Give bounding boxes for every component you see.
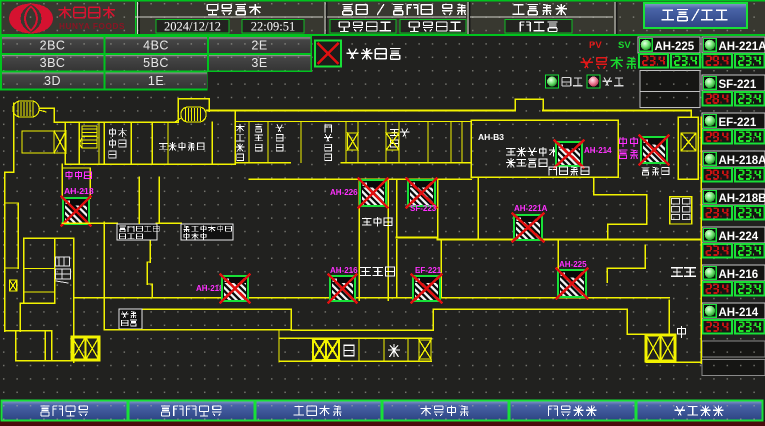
svg-text:3D: 3D bbox=[44, 74, 61, 88]
svg-text:AH-218A: AH-218A bbox=[719, 155, 765, 167]
svg-text:AH-224: AH-224 bbox=[719, 231, 759, 243]
svg-text:3E: 3E bbox=[251, 56, 267, 70]
svg-text:AH-218B: AH-218B bbox=[719, 193, 765, 205]
svg-text:SF-221: SF-221 bbox=[719, 79, 757, 91]
svg-text:AH-214: AH-214 bbox=[719, 307, 759, 319]
svg-text:1E: 1E bbox=[148, 74, 164, 88]
svg-text:AH-225: AH-225 bbox=[559, 260, 587, 269]
svg-text:4BC: 4BC bbox=[143, 39, 169, 53]
svg-text:AH-221A: AH-221A bbox=[719, 41, 765, 53]
svg-text:AH-216: AH-216 bbox=[330, 266, 358, 275]
svg-text:AH-218: AH-218 bbox=[196, 284, 224, 293]
svg-text:3BC: 3BC bbox=[40, 56, 66, 70]
svg-text:EF-221: EF-221 bbox=[719, 117, 757, 129]
svg-text:AH-216: AH-216 bbox=[719, 269, 759, 281]
svg-text:22:09:51: 22:09:51 bbox=[251, 20, 295, 34]
svg-text:PV: PV bbox=[589, 40, 602, 51]
svg-text:AH-221A: AH-221A bbox=[514, 204, 548, 213]
svg-text:EF-221: EF-221 bbox=[415, 266, 442, 275]
svg-text:2024/12/12: 2024/12/12 bbox=[164, 20, 221, 34]
svg-text:AH-B3: AH-B3 bbox=[478, 132, 504, 142]
svg-text:2BC: 2BC bbox=[40, 39, 66, 53]
svg-text:AH-214: AH-214 bbox=[584, 146, 612, 155]
svg-text:AH-226: AH-226 bbox=[330, 188, 358, 197]
svg-text:AH-218: AH-218 bbox=[64, 186, 94, 196]
svg-text:HUNYA FOODS: HUNYA FOODS bbox=[59, 22, 125, 31]
svg-text:AH-225: AH-225 bbox=[655, 41, 695, 53]
svg-text:SV: SV bbox=[618, 40, 631, 51]
svg-text:5BC: 5BC bbox=[143, 56, 169, 70]
svg-text:2E: 2E bbox=[251, 39, 267, 53]
svg-text:SF-223: SF-223 bbox=[410, 204, 437, 213]
